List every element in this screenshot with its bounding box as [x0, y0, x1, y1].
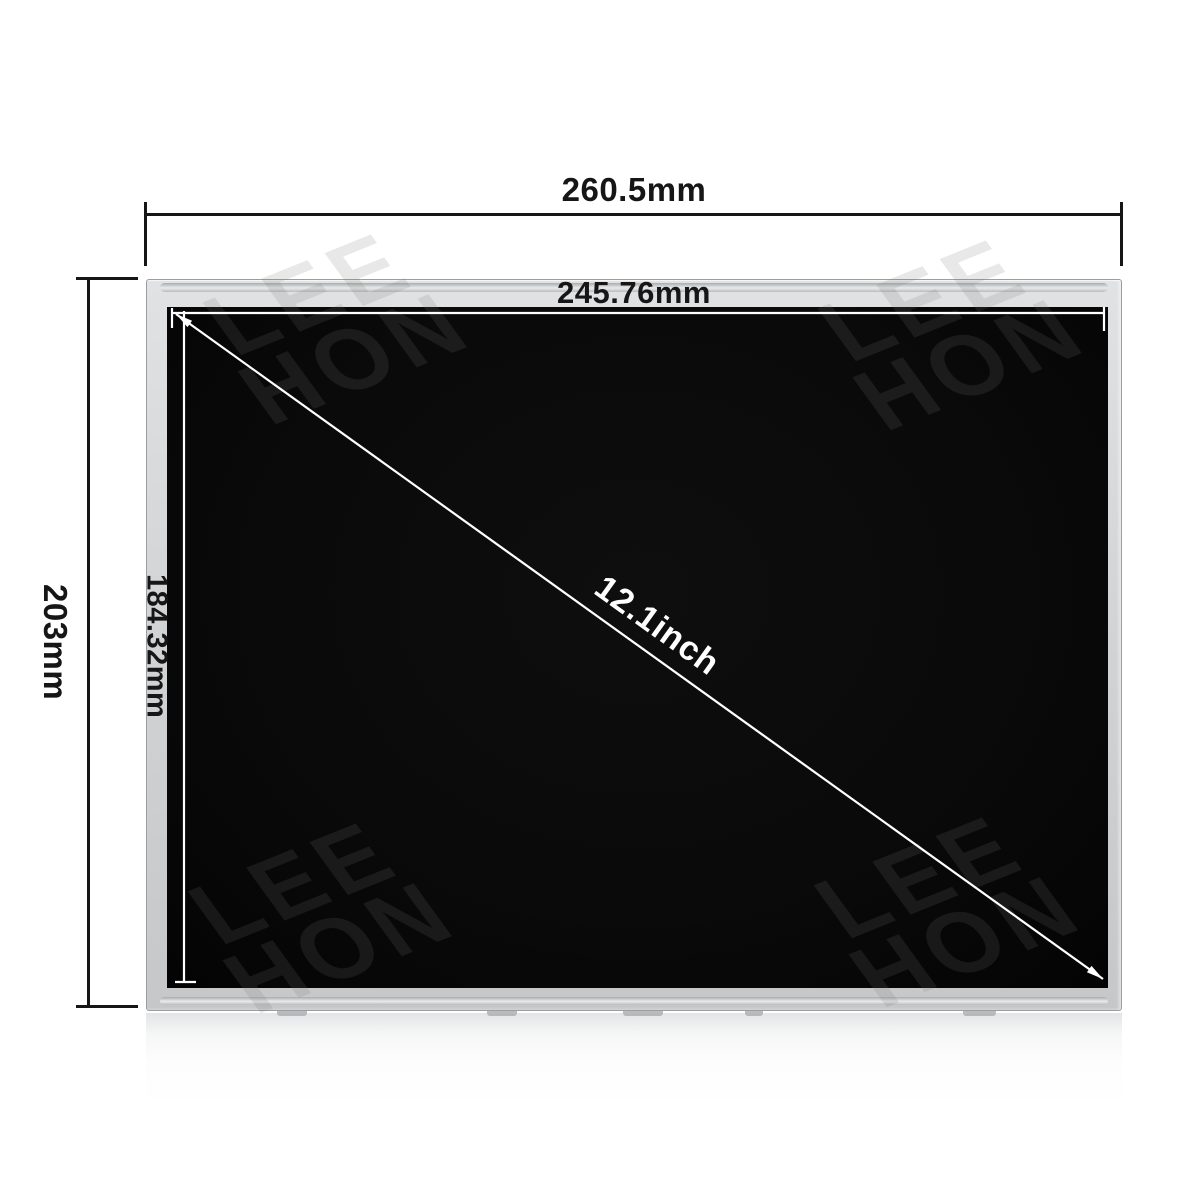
panel-reflection [146, 1013, 1122, 1133]
outer-width-right-tick [1120, 202, 1123, 266]
outer-width-label: 260.5mm [145, 171, 1123, 211]
outer-height-top-tick [76, 277, 138, 280]
outer-width-dimension-line [145, 213, 1123, 216]
bottom-mounting-tab [623, 1011, 663, 1016]
bottom-mounting-tab [745, 1011, 763, 1016]
outer-height-dimension-line [87, 277, 90, 1008]
outer-height-label: 203mm [36, 277, 74, 1008]
bottom-mounting-tab [487, 1011, 517, 1016]
lcd-panel-dimension-diagram: LEE HON LEE HON LEE HON LEE HON 12.1inch… [0, 0, 1200, 1200]
outer-width-left-tick [144, 202, 147, 266]
outer-height-bottom-tick [76, 1005, 138, 1008]
active-width-label: 245.76mm [146, 278, 1122, 307]
active-area-dimension-lines [166, 306, 1107, 987]
diagonal-line [176, 314, 1103, 979]
active-height-label: 184.32mm [139, 306, 173, 987]
bottom-mounting-tab [963, 1011, 996, 1016]
